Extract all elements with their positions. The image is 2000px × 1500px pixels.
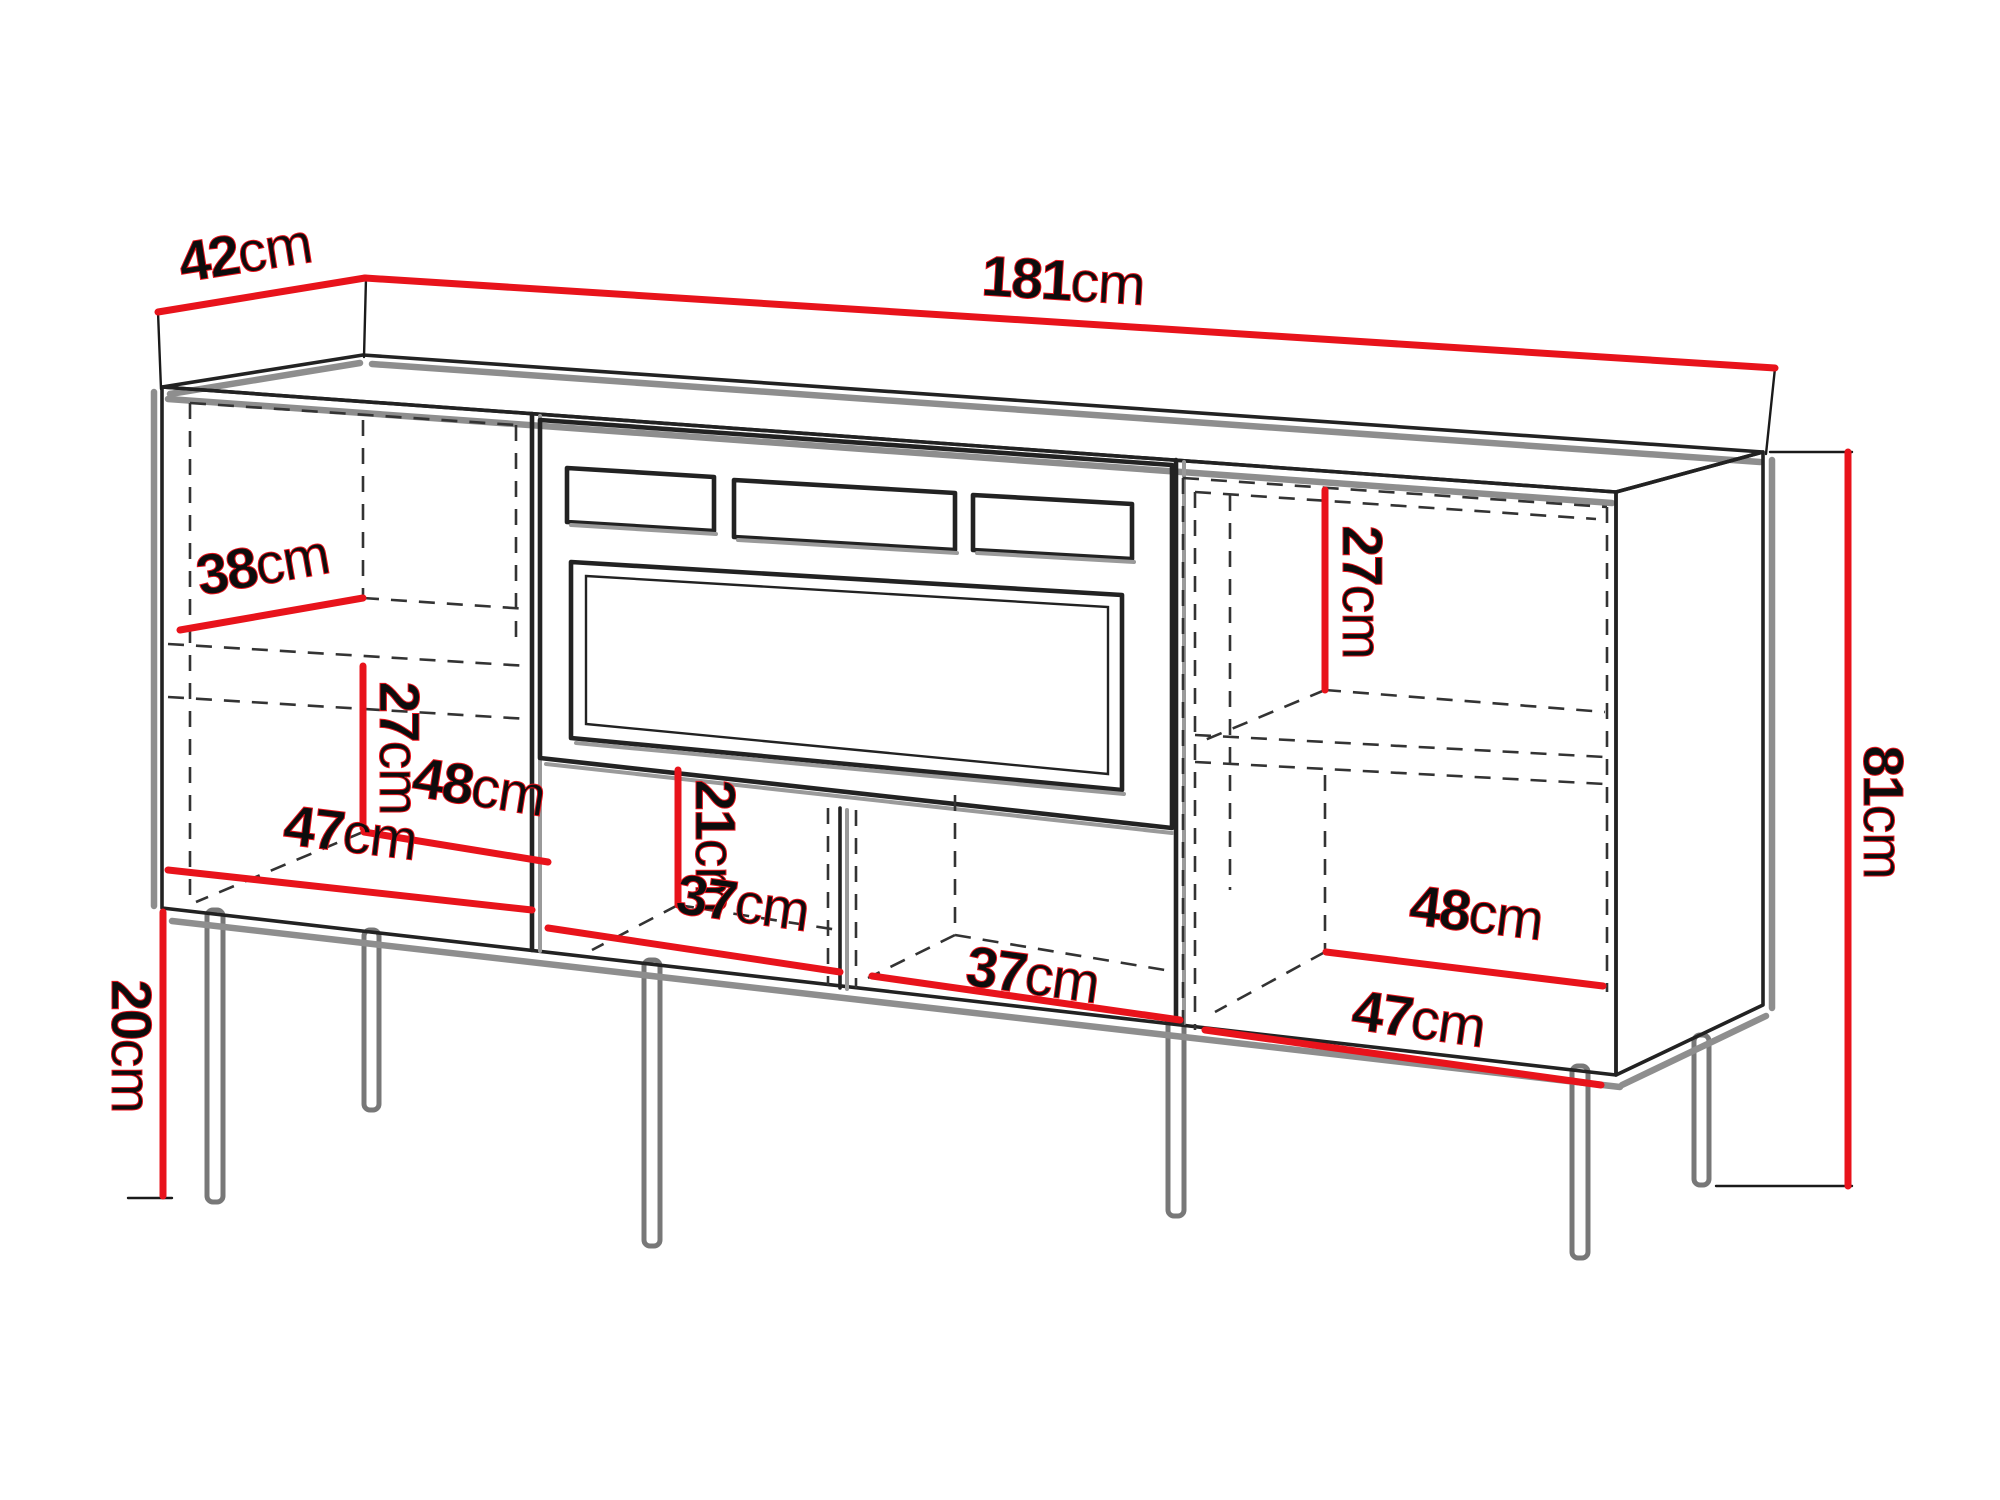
dimension-middle-left-width: 37cm	[548, 862, 840, 972]
shadow-top-back-edge	[372, 364, 1760, 462]
right-shelf-front-bottom	[1195, 762, 1605, 784]
dimension-height-label: 81cm	[1851, 745, 1915, 878]
left-shelf-back-edge	[363, 598, 528, 609]
dimension-left-shelf-depth: 38cm	[180, 522, 363, 630]
left-shelf-front-bottom	[168, 697, 528, 719]
right-side-panel	[1616, 452, 1763, 1075]
dimension-depth: 42cm	[158, 211, 366, 389]
tick-width-right	[1766, 368, 1775, 454]
dimension-left-shelf-depth-label: 38cm	[191, 522, 333, 608]
dimension-leg-height: 20cm	[99, 912, 172, 1198]
right-shelf-back-edge	[1325, 690, 1605, 712]
vent-slot-right	[973, 495, 1132, 559]
right-shelf-left-edge	[1200, 690, 1325, 742]
leg-front-right	[1572, 1066, 1588, 1258]
dimension-leg-height-label: 20cm	[99, 979, 163, 1112]
fireplace-window-inner	[586, 576, 1108, 774]
leg-front-mid-left	[644, 960, 660, 1246]
dimension-right-upper-height: 27cm	[1325, 490, 1394, 690]
dimension-middle-left-width-label: 37cm	[672, 862, 813, 944]
leg-front-mid-right	[1168, 1020, 1184, 1216]
tick-depth-back	[364, 278, 366, 357]
dimension-right-lower-width-label: 48cm	[1406, 873, 1546, 953]
furniture-dimension-diagram: 42cm 181cm 81cm 20cm 38cm 2	[0, 0, 2000, 1500]
dimension-right-floor-depth: 47cm	[1205, 978, 1601, 1085]
dimension-height: 81cm	[1716, 452, 1915, 1186]
vent-slot-middle	[734, 480, 955, 550]
mid-right-floor-left-edge	[868, 935, 955, 978]
right-shelf-front-top	[1195, 735, 1605, 757]
left-shelf-front-top	[168, 644, 528, 666]
right-door-dash-top-outer	[1183, 478, 1607, 507]
leg-front-left	[207, 910, 223, 1202]
leg-back-right	[1694, 1035, 1709, 1185]
legs	[207, 910, 1709, 1258]
dimension-depth-label: 42cm	[174, 211, 316, 295]
vent-slot-left	[567, 468, 714, 531]
dimension-right-upper-height-label: 27cm	[1330, 525, 1394, 658]
dimension-width-label: 181cm	[980, 244, 1147, 318]
diagram-page: 42cm 181cm 81cm 20cm 38cm 2	[0, 0, 2000, 1500]
leg-back-left	[364, 930, 379, 1110]
dimension-right-lower-width: 48cm	[1326, 873, 1603, 986]
fireplace-window-outer	[571, 562, 1122, 790]
right-floor-left-edge	[1215, 952, 1325, 1012]
dimension-left-lower-width-label: 48cm	[408, 745, 550, 829]
tick-depth-front	[158, 312, 161, 389]
fireplace-panel-shadow	[546, 764, 1172, 833]
top-surface	[162, 355, 1763, 492]
